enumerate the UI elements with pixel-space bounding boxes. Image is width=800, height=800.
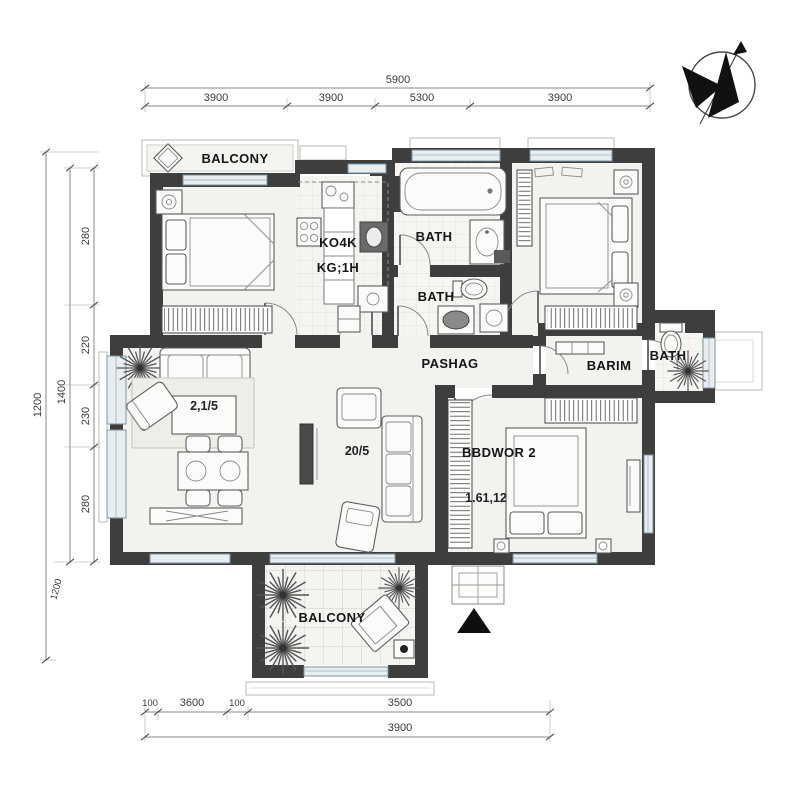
nightstand-tr-bottom — [614, 283, 638, 307]
dim-bottom-overall: 3900 — [388, 722, 412, 734]
dim-bottom-seg4: 3500 — [388, 697, 412, 709]
dresser-bedroom2 — [627, 460, 640, 512]
dim-left-seg1: 280 — [80, 227, 92, 245]
washer-icon — [480, 304, 508, 332]
label-living-area: 2,1/5 — [190, 399, 218, 413]
label-passage: PASHAG — [421, 356, 478, 371]
dim-top-overall: 5900 — [386, 74, 410, 86]
dim-left-bottom-small: 1200 — [49, 578, 65, 601]
wardrobe-bedroom-tr-bottom — [545, 306, 637, 330]
dim-left-seg2: 220 — [80, 336, 92, 354]
stove-icon — [297, 218, 321, 246]
bath1-vanity — [470, 220, 510, 264]
dim-bottom-seg3: 100 — [229, 698, 245, 709]
dimension-left: 1200 1400 280 220 230 280 1200 — [32, 149, 100, 663]
label-hall: BARIM — [587, 358, 632, 373]
dimension-top: 5900 3900 3900 5300 3900 — [141, 74, 654, 112]
north-compass-icon — [682, 41, 755, 124]
wardrobe-bedroom1 — [162, 306, 272, 333]
label-bath-middle: BATH — [418, 289, 455, 304]
bed-bedroom-tr — [540, 198, 632, 294]
dim-left-seg3: 230 — [80, 407, 92, 425]
tv-console-living — [150, 508, 242, 524]
label-bedroom2: BBDWOR 2 — [462, 445, 536, 460]
dimension-bottom: 100 3600 100 3500 3900 — [141, 697, 554, 742]
label-balcony-top: BALCONY — [201, 151, 268, 166]
toilet-bath2-icon — [453, 279, 487, 299]
dim-top-seg2: 3900 — [319, 92, 343, 104]
entry-arrow-icon — [457, 608, 491, 633]
dim-left-outer: 1200 — [32, 393, 44, 417]
bathtub-icon — [400, 168, 506, 215]
label-bath-top: BATH — [416, 229, 453, 244]
bed-bedroom1 — [162, 214, 274, 290]
label-kitchen-2: KG;1H — [317, 260, 359, 275]
dim-top-seg3: 5300 — [410, 92, 434, 104]
dim-bottom-seg1: 100 — [142, 698, 158, 709]
label-kitchen-1: KO4K — [319, 235, 357, 250]
label-bedroom2-area: 1.61,12 — [465, 491, 507, 505]
chaise-center — [335, 501, 380, 553]
label-bath-right: BATH — [650, 348, 687, 363]
hall-bench — [556, 342, 604, 354]
sofa-center-right — [382, 416, 422, 522]
wardrobe-bedroom2-top — [545, 398, 637, 423]
bath2-sink — [438, 306, 474, 334]
label-living-area2: 20/5 — [345, 444, 369, 458]
wardrobe-bedroom-tr-left — [517, 170, 532, 246]
balcony-box — [394, 640, 414, 658]
dim-top-seg4: 3900 — [548, 92, 572, 104]
armchair-center — [337, 388, 381, 428]
dim-bottom-seg2: 3600 — [180, 697, 204, 709]
floor-plan-canvas: BALCONY KO4K KG;1H BATH BATH PASHAG BARI… — [0, 0, 800, 800]
dim-left-seg4: 280 — [80, 495, 92, 513]
label-balcony-bottom: BALCONY — [298, 610, 365, 625]
closet-bedroom2-left — [448, 400, 472, 548]
dim-top-seg1: 3900 — [204, 92, 228, 104]
nightstand-tr-top — [614, 170, 638, 194]
dim-left-inner: 1400 — [56, 380, 68, 404]
wall-unit-bedroom1 — [156, 190, 182, 214]
